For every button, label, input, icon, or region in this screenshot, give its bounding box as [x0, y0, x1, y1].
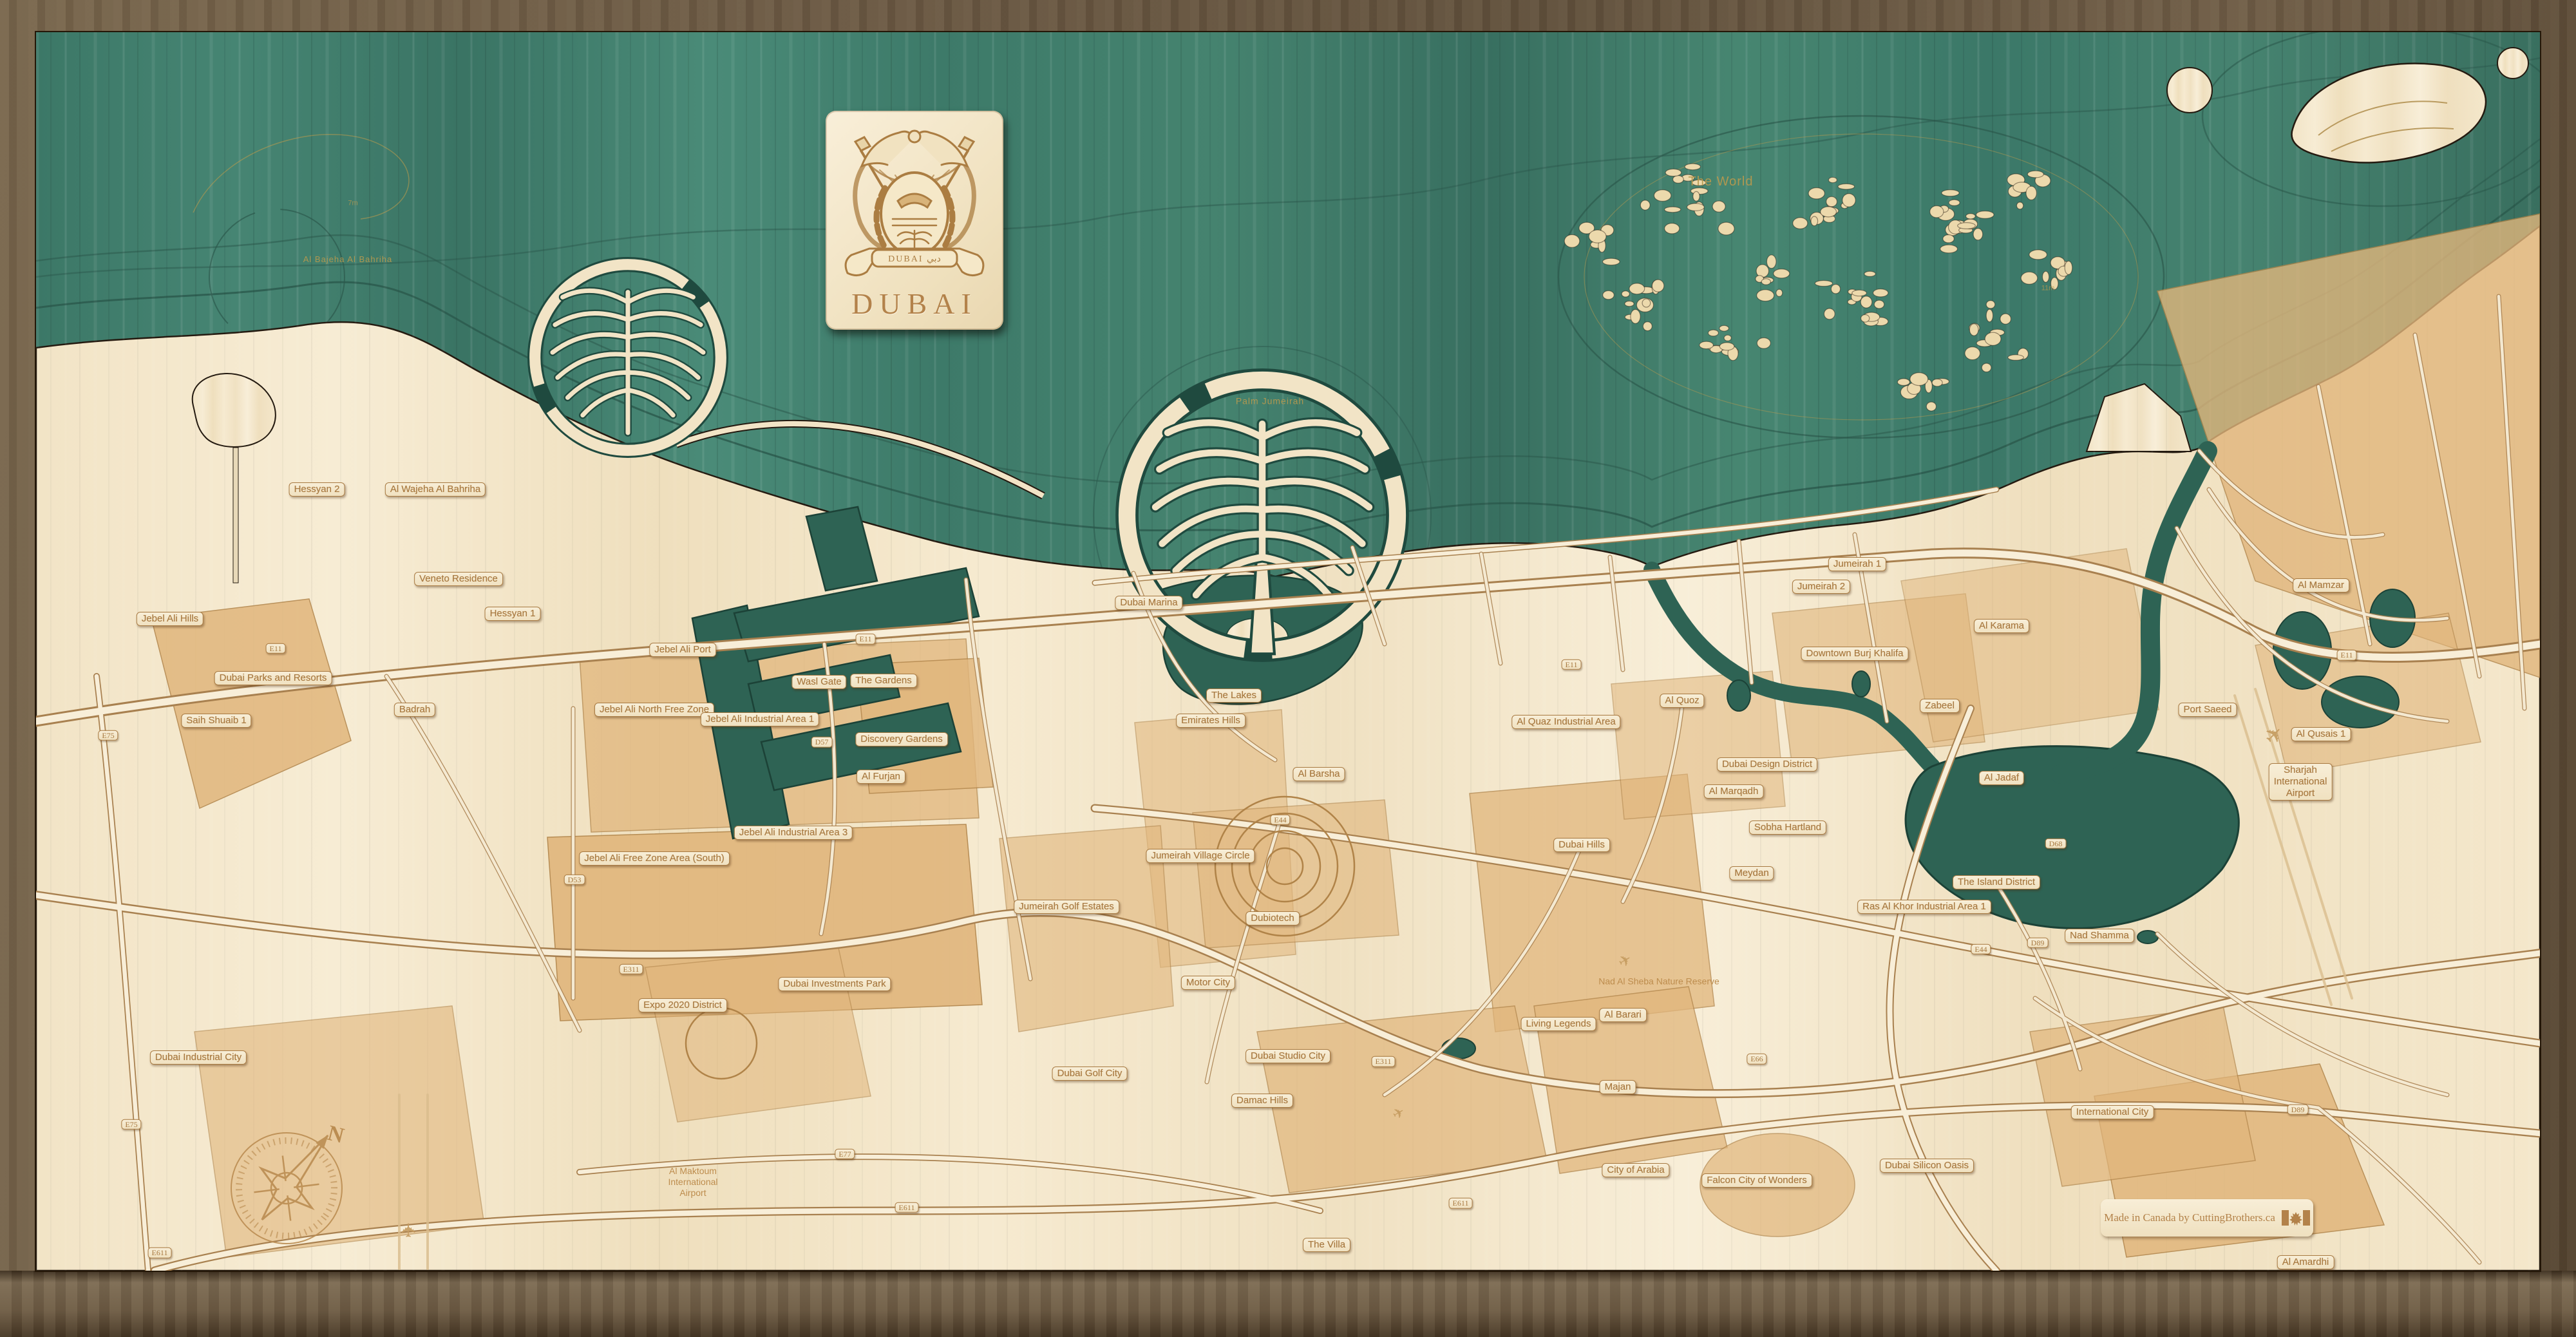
framed-wood-map: Hessyan 2Al Wajeha Al BahrihaVeneto Resi… [0, 0, 2576, 1337]
map-engraving [0, 0, 2576, 1337]
left-island-causeway [233, 448, 238, 583]
uae-coat-of-arms: DUBAI دبي [826, 111, 1003, 289]
crest-banner-text: DUBAI دبي [888, 254, 941, 264]
credit-text: Made in Canada by CuttingBrothers.ca [2104, 1211, 2275, 1224]
map-area: Hessyan 2Al Wajeha Al BahrihaVeneto Resi… [36, 32, 2540, 1271]
compass-rose: N [209, 1111, 364, 1266]
crest-plaque: DUBAI دبي DUBAI [826, 111, 1003, 330]
deira-island-small [2167, 68, 2212, 113]
compass-north-letter: N [325, 1121, 346, 1148]
credit-plaque: Made in Canada by CuttingBrothers.ca [2101, 1199, 2313, 1237]
crest-region-title: DUBAI [826, 287, 1003, 321]
canada-flag-icon [2282, 1210, 2310, 1226]
deira-island-tiny [2497, 48, 2528, 79]
